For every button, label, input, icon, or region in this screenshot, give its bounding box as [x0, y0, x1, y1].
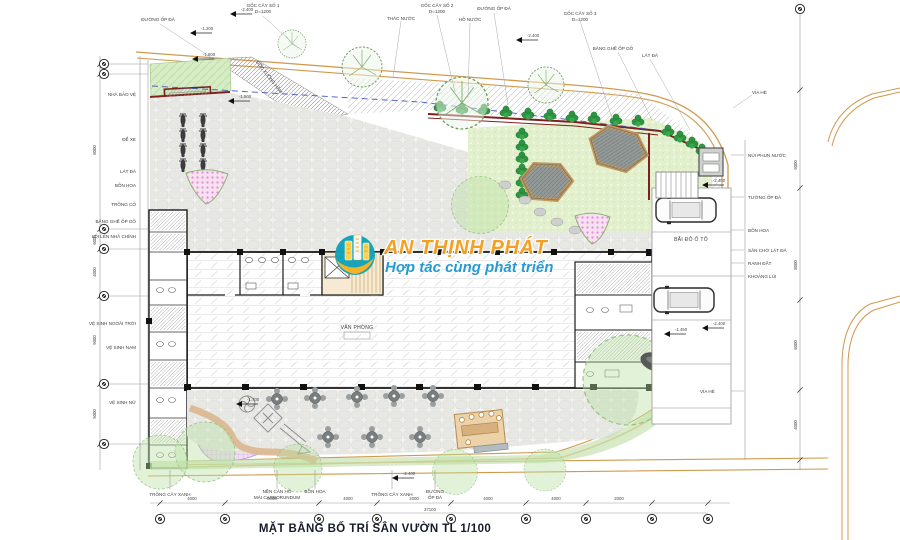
label-stone-path: ĐƯỜNG ỐP ĐÁ — [141, 16, 175, 22]
label-setback: KHOẢNG LÙI — [748, 273, 776, 279]
label-waterfall: THÁC NƯỚC — [387, 15, 416, 21]
label-wood-bench: BĂNG GHẾ ỐP GỖ — [593, 45, 634, 51]
plan-canvas: 4000 8000 4000 2000 4000 4000 2000 37100… — [0, 0, 900, 540]
elevation-value: -1.800 — [203, 52, 216, 57]
label-sidewalk: VỈA HÈ — [700, 388, 715, 394]
label-sidewalk: VỈA HÈ — [752, 89, 767, 95]
watermark-tagline: Hợp tác cùng phát triển — [385, 259, 553, 276]
dim-value: 4000 — [92, 267, 97, 277]
dim-value: 4000 — [483, 496, 493, 501]
dim-value: 4000 — [793, 420, 798, 430]
label-tree-1: GỐC CÂY SỐ 1 — [247, 2, 280, 8]
label-rock-fountain: NÚI PHUN NƯỚC — [748, 152, 787, 158]
label-wood-bench: BĂNG GHẾ ỐP GỖ — [95, 218, 136, 224]
dim-value: 8000 — [92, 145, 97, 155]
label-pond: HỒ NƯỚC — [459, 16, 482, 22]
label-floor-finish-2: MÀI CARBORUNDUM — [254, 494, 300, 500]
label-tree-3: GỐC CÂY SỐ 3 — [564, 10, 597, 16]
label-waiting-court: SÂN CHỜ LÁT ĐÁ — [748, 247, 788, 253]
car-park — [652, 188, 731, 424]
label-main-entry: LỐI LÊN NHÀ CHÍNH — [92, 232, 136, 239]
label-wc-men: VỆ SINH NAM — [106, 343, 136, 350]
outdoor-bar — [454, 409, 508, 454]
dim-value: 9000 — [92, 335, 97, 345]
dim-total: 37100 — [424, 507, 437, 512]
label-wc-women: VỆ SINH NỮ — [109, 398, 136, 405]
elevation-value: -2.400 — [527, 33, 540, 38]
drawing-title: MẶT BẰNG BỐ TRÍ SÂN VƯỜN TL 1/100 — [259, 521, 491, 535]
label-grass: TRỒNG CỎ — [111, 201, 136, 207]
label-tree-2-size: D=1200 — [429, 9, 446, 14]
label-stone-path: ĐƯỜNG ỐP ĐÁ — [477, 5, 511, 11]
elevation-value: -1.500 — [239, 94, 252, 99]
dim-value: 6000 — [793, 340, 798, 350]
label-flower-bed: BỒN HOA — [115, 182, 137, 188]
elevation-value: -1.700 — [247, 397, 260, 402]
dim-value: 2000 — [614, 496, 624, 501]
label-flower-bed: BỒN HOA — [304, 488, 326, 494]
watermark-logo-icon — [335, 235, 375, 275]
dim-value: 9000 — [793, 160, 798, 170]
dim-value: 4000 — [551, 496, 561, 501]
elevation-value: -2.400 — [403, 471, 416, 476]
label-stone-path-2: ỐP ĐÁ — [428, 494, 443, 500]
outdoor-stairs — [656, 172, 698, 198]
label-planting: TRỒNG CÂY XANH — [371, 491, 412, 497]
elevation-value: -2.400 — [713, 321, 726, 326]
label-planting: TRỒNG CÂY XANH — [149, 491, 190, 497]
label-outdoor-wc: VỆ SINH NGOÀI TRỜI — [89, 319, 136, 326]
utility-box — [699, 148, 723, 176]
dim-value: 5000 — [92, 409, 97, 419]
label-moto-parking: ĐỂ XE — [122, 136, 136, 142]
elevation-value: -1.200 — [201, 26, 214, 31]
label-car-park: BÃI ĐỖ Ô TÔ — [674, 236, 708, 243]
watermark-brand: AN THỊNH PHÁT — [383, 236, 549, 259]
label-paving: LÁT ĐÁ — [642, 52, 659, 58]
label-tree-1-size: D=1200 — [255, 9, 272, 14]
label-stone-wall: TƯỜNG ỐP ĐÁ — [748, 194, 782, 200]
dim-value: 4000 — [343, 496, 353, 501]
dim-value: 8000 — [793, 260, 798, 270]
label-guard-house: NHÀ BẢO VỆ — [108, 90, 136, 97]
label-stone-paving: LÁT ĐÁ — [120, 168, 137, 174]
label-property-line: RANH ĐẤT — [748, 260, 772, 266]
elevation-value: -2.400 — [713, 178, 726, 183]
label-stone-path: ĐƯỜNG — [426, 488, 444, 494]
label-floor-finish: NỀN CÁN HỒ — [263, 488, 292, 494]
site-plan-drawing: 4000 8000 4000 2000 4000 4000 2000 37100… — [0, 0, 900, 540]
label-office-hall: VĂN PHÒNG — [341, 324, 374, 331]
watermark: AN THỊNH PHÁT Hợp tác cùng phát triển — [335, 235, 553, 276]
elevation-value: -1.450 — [675, 327, 688, 332]
label-flower-bed: BỒN HOA — [748, 227, 770, 233]
label-tree-3-size: D=1200 — [572, 17, 589, 22]
label-tree-2: GỐC CÂY SỐ 2 — [421, 2, 454, 8]
